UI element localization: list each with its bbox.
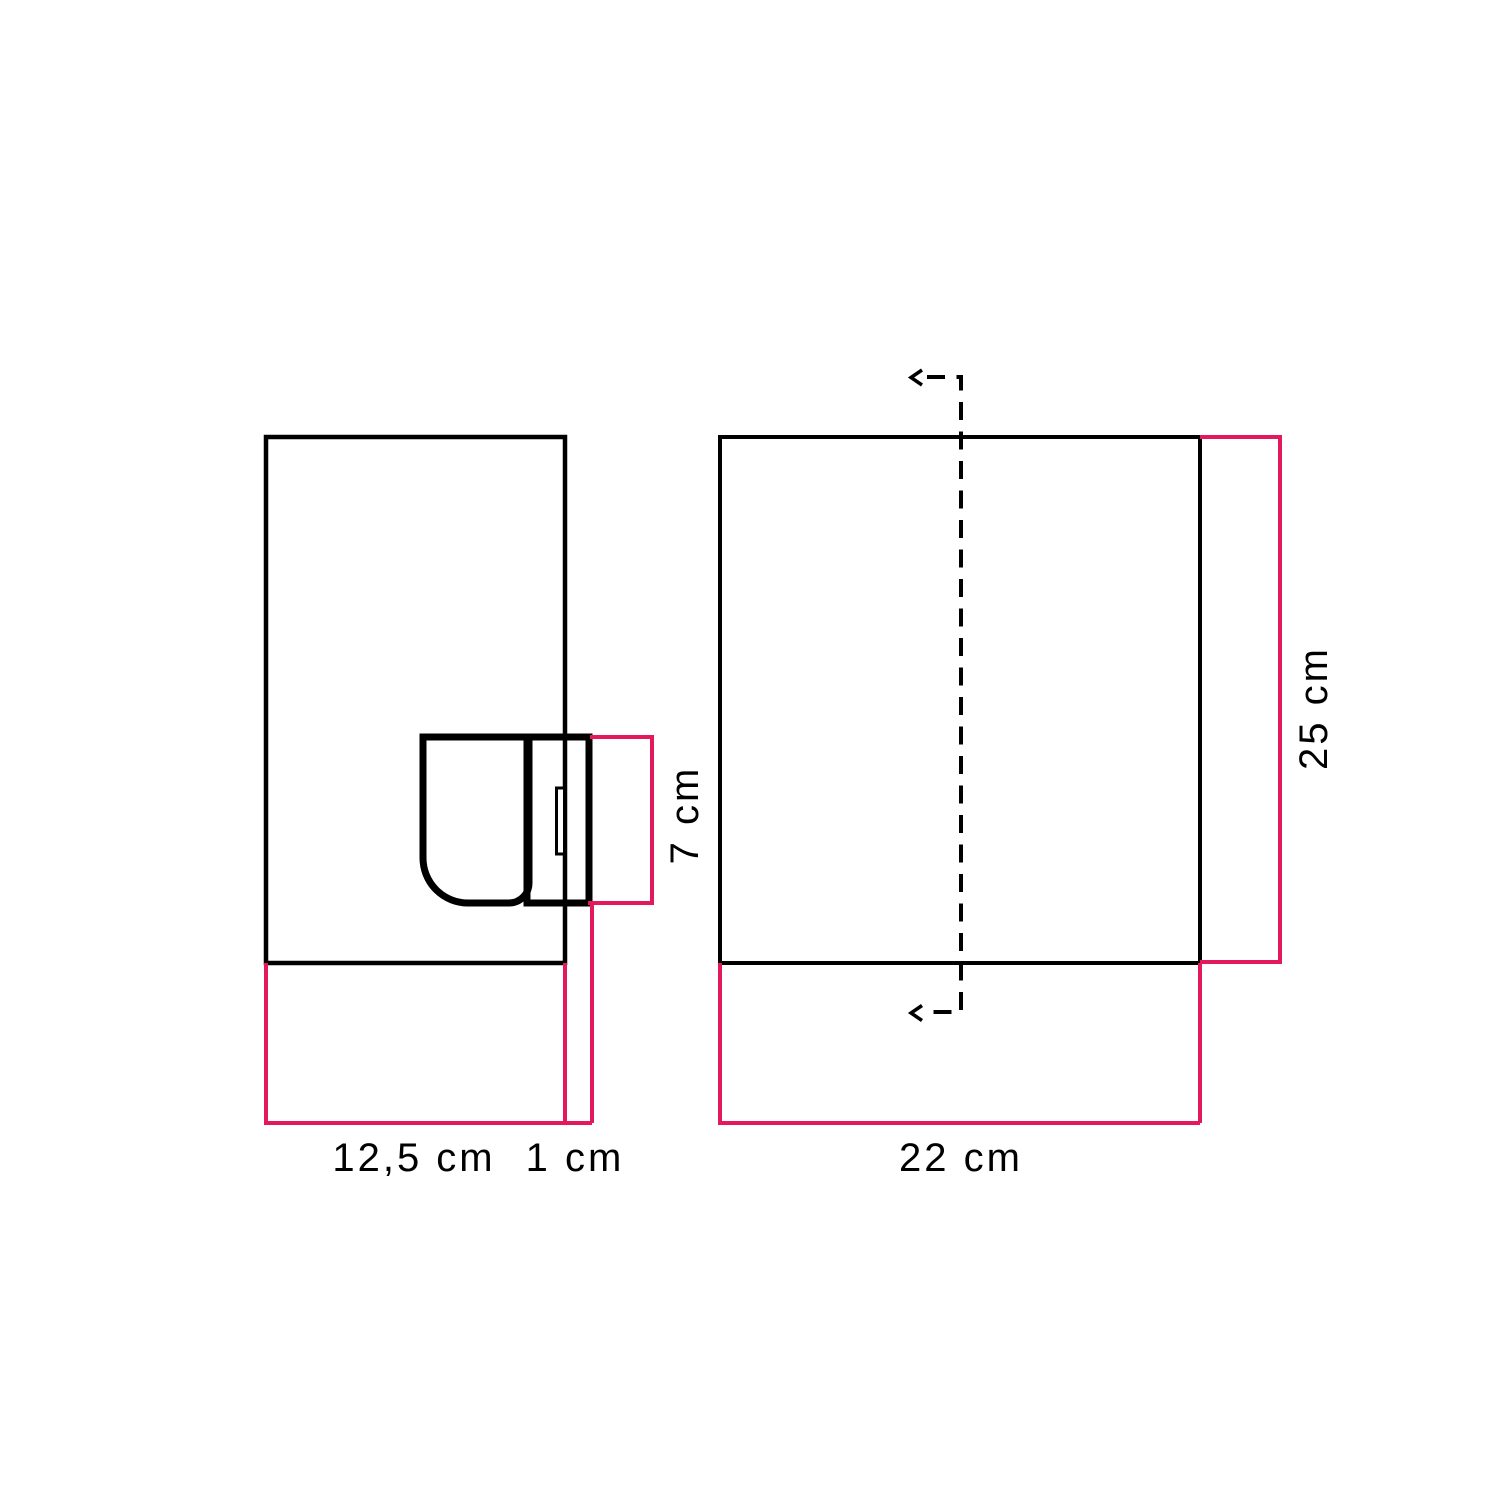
front-view: 22 cm 25 cm: [720, 370, 1336, 1180]
dim-depth-bracket: [266, 963, 592, 1123]
label-width: 22 cm: [899, 1136, 1023, 1180]
dim-height-bracket: [1200, 437, 1280, 962]
label-depth: 12,5 cm: [332, 1136, 495, 1180]
bottom-left-arrow-icon: [911, 1006, 922, 1021]
side-view: 12,5 cm 1 cm 7 cm: [266, 437, 707, 1180]
dim-socket-bracket: [588, 737, 652, 903]
dashed-centerline: [927, 377, 961, 1012]
dim-width-bracket: [720, 963, 1200, 1123]
product-dimensions-diagram: 12,5 cm 1 cm 7 cm 22 cm 25 cm: [0, 0, 1500, 1500]
label-height: 25 cm: [1292, 646, 1336, 770]
label-plate-thickness: 1 cm: [526, 1136, 625, 1180]
side-view-outline: [266, 437, 565, 963]
lamp-holder-slot: [557, 788, 565, 854]
label-socket-height: 7 cm: [663, 766, 707, 865]
top-left-arrow-icon: [911, 370, 922, 385]
lamp-holder-cup: [423, 737, 529, 903]
